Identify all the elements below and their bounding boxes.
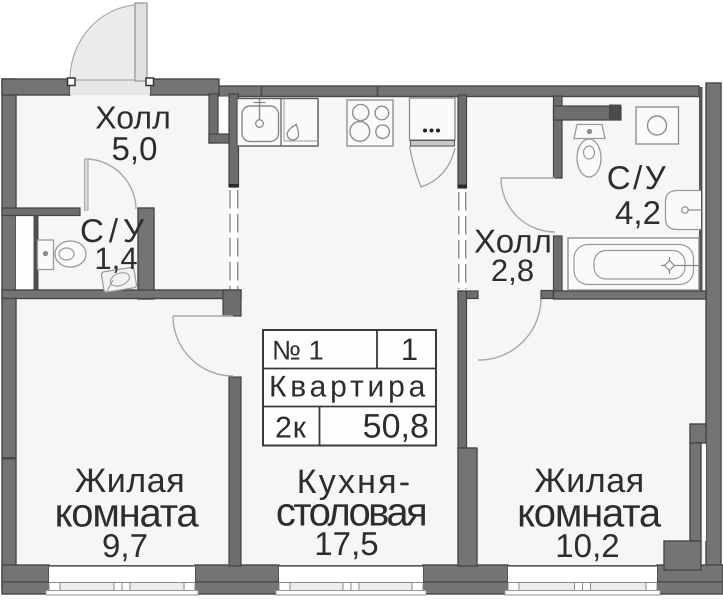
- svg-text:1: 1: [401, 332, 418, 367]
- svg-text:С/У: С/У: [607, 159, 668, 196]
- svg-text:10,2: 10,2: [555, 527, 619, 564]
- svg-text:9,7: 9,7: [102, 527, 148, 564]
- svg-text:№ 1: № 1: [272, 336, 324, 366]
- svg-text:50,8: 50,8: [363, 408, 429, 446]
- svg-text:2,8: 2,8: [491, 253, 534, 288]
- svg-text:1,4: 1,4: [94, 241, 137, 276]
- svg-text:Квартира: Квартира: [269, 371, 429, 404]
- svg-text:4,2: 4,2: [615, 194, 661, 231]
- svg-text:5,0: 5,0: [111, 130, 157, 167]
- svg-text:2к: 2к: [275, 412, 307, 445]
- svg-text:17,5: 17,5: [314, 525, 378, 562]
